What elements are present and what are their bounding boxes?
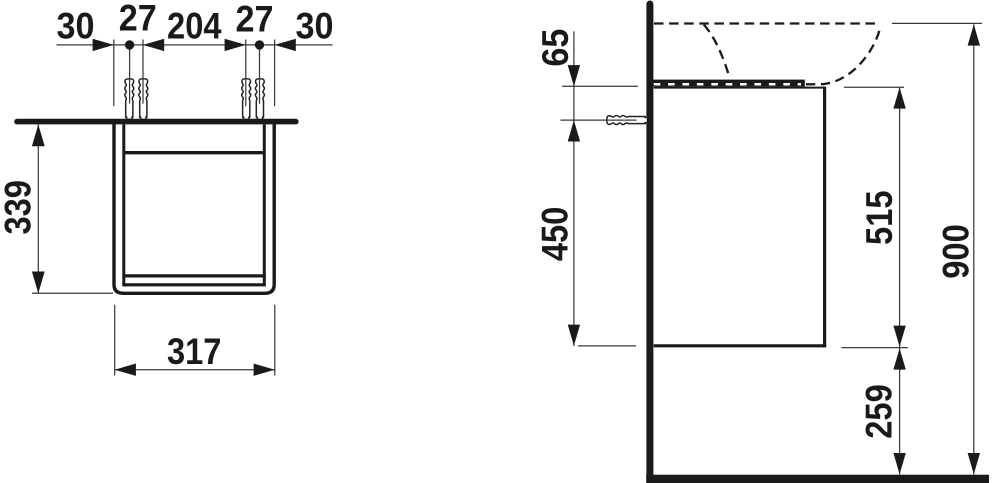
svg-text:339: 339 [0, 180, 38, 235]
svg-text:27: 27 [236, 0, 274, 40]
svg-text:30: 30 [57, 6, 95, 47]
svg-text:30: 30 [296, 6, 334, 47]
svg-text:317: 317 [167, 331, 222, 372]
svg-text:900: 900 [935, 224, 976, 279]
svg-text:515: 515 [859, 190, 900, 245]
svg-text:65: 65 [535, 29, 576, 67]
svg-text:450: 450 [535, 207, 576, 262]
svg-text:204: 204 [167, 6, 222, 47]
svg-text:259: 259 [859, 384, 900, 439]
svg-text:27: 27 [119, 0, 157, 39]
